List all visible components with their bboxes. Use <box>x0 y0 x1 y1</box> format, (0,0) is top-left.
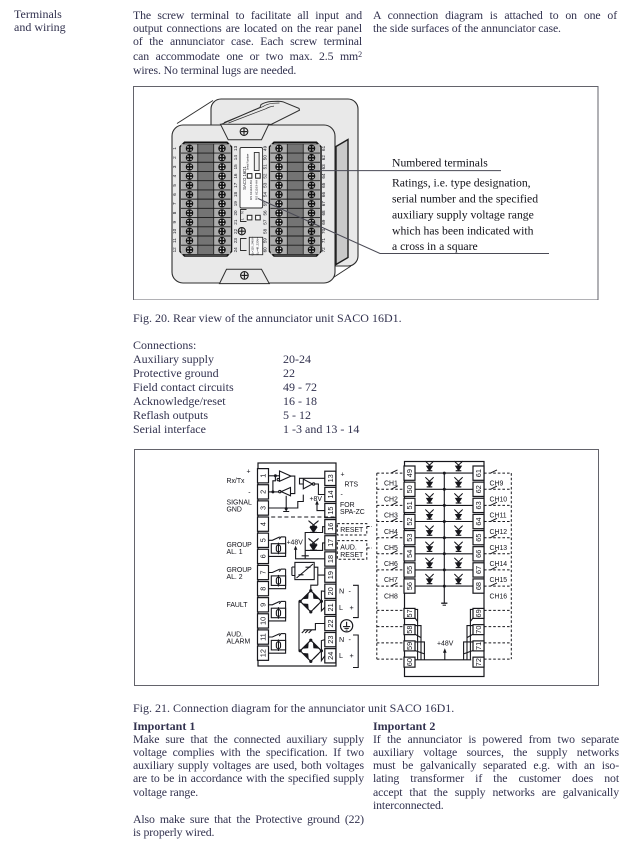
svg-text:55: 55 <box>405 566 414 574</box>
svg-text:8: 8 <box>259 587 268 591</box>
svg-text:61: 61 <box>474 469 483 477</box>
svg-text:23: 23 <box>233 238 238 244</box>
svg-text:CH11: CH11 <box>490 513 507 520</box>
svg-text:5: 5 <box>172 184 177 187</box>
svg-text:13: 13 <box>326 474 335 482</box>
svg-text:61: 61 <box>321 145 326 151</box>
svg-text:12: 12 <box>172 247 177 253</box>
svg-text:3: 3 <box>259 506 268 510</box>
svg-text:21: 21 <box>233 219 238 225</box>
svg-text:12: 12 <box>259 649 268 657</box>
svg-text:70: 70 <box>474 626 483 634</box>
svg-text:FOR: FOR <box>340 502 355 509</box>
svg-text:54: 54 <box>405 550 414 558</box>
svg-text:AL. 2: AL. 2 <box>227 574 243 581</box>
svg-text:69: 69 <box>321 219 326 225</box>
svg-text:53: 53 <box>405 534 414 542</box>
svg-text:+: + <box>246 469 250 476</box>
svg-text:L: L <box>339 651 343 660</box>
svg-text:17: 17 <box>233 182 238 188</box>
svg-text:72: 72 <box>474 658 483 666</box>
svg-text:63: 63 <box>321 164 326 170</box>
svg-text:AUD.: AUD. <box>227 632 244 639</box>
svg-text:4: 4 <box>172 174 177 177</box>
svg-text:57: 57 <box>405 609 414 617</box>
svg-text:20: 20 <box>326 587 335 595</box>
svg-text:68: 68 <box>321 210 326 216</box>
svg-text:9: 9 <box>259 603 268 607</box>
svg-text:RESET: RESET <box>340 527 364 534</box>
svg-text:SIGNAL: SIGNAL <box>227 500 252 507</box>
svg-text:62: 62 <box>321 155 326 161</box>
svg-text:52: 52 <box>405 517 414 525</box>
svg-text:-: - <box>341 492 343 499</box>
svg-text:15: 15 <box>326 507 335 515</box>
svg-text:4: 4 <box>259 522 268 526</box>
svg-text:serial number and the specifie: serial number and the specified <box>392 193 538 206</box>
svg-text:N: N <box>339 587 344 596</box>
svg-text:67: 67 <box>474 566 483 574</box>
svg-text:71: 71 <box>474 642 483 650</box>
svg-text:50: 50 <box>405 485 414 493</box>
svg-text:14: 14 <box>326 490 335 498</box>
svg-text:U₀=48..220V=: U₀=48..220V= <box>256 237 260 255</box>
svg-text:CH13: CH13 <box>490 545 508 552</box>
svg-text:64: 64 <box>474 517 483 525</box>
svg-text:60: 60 <box>405 658 414 666</box>
svg-text:CH3: CH3 <box>384 513 398 520</box>
svg-text:58: 58 <box>262 228 267 234</box>
svg-text:66: 66 <box>474 550 483 558</box>
svg-text:64: 64 <box>321 173 326 179</box>
svg-text:24: 24 <box>233 247 238 253</box>
svg-text:69: 69 <box>474 609 483 617</box>
svg-text:59: 59 <box>405 642 414 650</box>
svg-text:CH5: CH5 <box>384 545 398 552</box>
svg-text:CH10: CH10 <box>490 497 508 504</box>
svg-text:RS 611163-AA: RS 611163-AA <box>255 179 259 200</box>
svg-text:23: 23 <box>326 636 335 644</box>
svg-text:22: 22 <box>326 619 335 627</box>
svg-text:U₀=110..240V~: U₀=110..240V~ <box>250 236 254 255</box>
svg-text:CH4: CH4 <box>384 529 398 536</box>
svg-text:10: 10 <box>259 617 268 625</box>
svg-text:Rx/Tx: Rx/Tx <box>227 478 246 485</box>
svg-text:auxiliary supply voltage range: auxiliary supply voltage range <box>392 208 534 221</box>
svg-text:15: 15 <box>233 164 238 170</box>
svg-text:58: 58 <box>405 626 414 634</box>
svg-text:24: 24 <box>326 652 335 660</box>
svg-text:AUD.: AUD. <box>340 544 357 551</box>
svg-text:65: 65 <box>321 182 326 188</box>
svg-text:Serial Number: Serial Number <box>246 154 250 171</box>
svg-text:a cross in a square: a cross in a square <box>392 240 478 253</box>
svg-text:+: + <box>350 651 354 660</box>
svg-text:56: 56 <box>262 210 267 216</box>
svg-text:CH2: CH2 <box>384 497 398 504</box>
svg-text:CH15: CH15 <box>490 577 508 584</box>
svg-text:10: 10 <box>172 228 177 234</box>
svg-text:8: 8 <box>172 211 177 214</box>
svg-text:FAULT: FAULT <box>227 602 249 609</box>
svg-text:7: 7 <box>172 202 177 205</box>
svg-text:71: 71 <box>321 238 326 244</box>
svg-text:+: + <box>341 471 345 478</box>
svg-text:CH8: CH8 <box>384 593 398 600</box>
svg-text:11: 11 <box>172 238 177 243</box>
svg-text:22: 22 <box>233 228 238 234</box>
svg-text:RTS: RTS <box>345 482 359 489</box>
svg-text:11: 11 <box>259 633 268 641</box>
svg-text:2: 2 <box>172 156 177 159</box>
svg-text:GROUP: GROUP <box>227 567 253 574</box>
svg-text:3: 3 <box>172 165 177 168</box>
svg-text:GND: GND <box>227 507 242 514</box>
svg-text:CH16: CH16 <box>490 593 508 600</box>
svg-text:6: 6 <box>259 554 268 558</box>
svg-text:9: 9 <box>172 220 177 223</box>
svg-text:SPA-ZC: SPA-ZC <box>340 509 365 516</box>
svg-text:66: 66 <box>321 192 326 198</box>
svg-text:20: 20 <box>233 210 238 216</box>
svg-text:+48V: +48V <box>287 539 304 546</box>
svg-text:RESET: RESET <box>340 552 364 559</box>
svg-text:L: L <box>241 218 245 220</box>
svg-text:CH14: CH14 <box>490 561 508 568</box>
svg-text:13: 13 <box>233 145 238 151</box>
svg-text:which has been indicated with: which has been indicated with <box>392 224 534 237</box>
svg-text:1: 1 <box>172 147 177 150</box>
svg-text:16: 16 <box>326 523 335 531</box>
svg-text:RS 611163-BA: RS 611163-BA <box>249 179 253 200</box>
svg-text:57: 57 <box>262 219 267 225</box>
svg-text:N: N <box>339 635 344 644</box>
svg-text:56: 56 <box>405 582 414 590</box>
svg-text:6: 6 <box>172 193 177 196</box>
svg-text:62: 62 <box>474 485 483 493</box>
svg-text:Ratings, i.e. type designation: Ratings, i.e. type designation, <box>392 177 531 190</box>
svg-text:19: 19 <box>326 571 335 579</box>
svg-text:+8V: +8V <box>310 496 323 503</box>
svg-text:ALARM: ALARM <box>227 639 251 646</box>
svg-text:2: 2 <box>259 490 268 494</box>
svg-text:67: 67 <box>321 201 326 207</box>
svg-text:72: 72 <box>321 247 326 253</box>
svg-text:1: 1 <box>259 474 268 478</box>
svg-text:49: 49 <box>405 469 414 477</box>
svg-text:7: 7 <box>259 570 268 574</box>
svg-text:AL. 1: AL. 1 <box>227 549 243 556</box>
svg-text:CH12: CH12 <box>490 529 508 536</box>
svg-text:-: - <box>248 489 250 496</box>
svg-text:Numbered terminals: Numbered terminals <box>392 157 488 170</box>
svg-text:17: 17 <box>326 539 335 547</box>
svg-text:68: 68 <box>474 582 483 590</box>
svg-text:21: 21 <box>326 603 335 611</box>
svg-text:GROUP: GROUP <box>227 542 253 549</box>
svg-text:63: 63 <box>474 501 483 509</box>
svg-text:+48V: +48V <box>437 640 454 647</box>
svg-text:CH1: CH1 <box>384 480 398 487</box>
svg-text:CH9: CH9 <box>490 480 504 487</box>
svg-text:CH6: CH6 <box>384 561 398 568</box>
svg-text:18: 18 <box>326 555 335 563</box>
svg-text:5: 5 <box>259 538 268 542</box>
svg-text:CH7: CH7 <box>384 577 398 584</box>
svg-text:16: 16 <box>233 173 238 179</box>
svg-text:L: L <box>339 603 343 612</box>
svg-text:65: 65 <box>474 534 483 542</box>
svg-text:14: 14 <box>233 155 238 161</box>
svg-text:51: 51 <box>405 501 414 509</box>
svg-text:+: + <box>350 603 354 612</box>
svg-text:18: 18 <box>233 192 238 198</box>
svg-text:19: 19 <box>233 201 238 207</box>
